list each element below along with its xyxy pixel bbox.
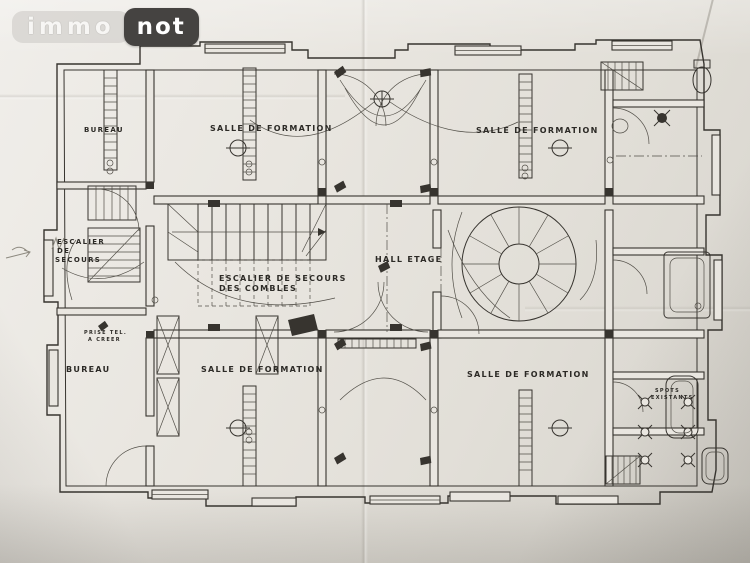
doors	[97, 74, 649, 486]
label-escalier-combles-1: ESCALIER DE SECOURS	[219, 274, 347, 283]
label-spots-2: EXISTANTS	[651, 395, 694, 401]
label-salle-bottom-right: SALLE DE FORMATION	[467, 370, 590, 379]
interior-walls	[57, 70, 704, 486]
immonot-logo-immo: immo	[12, 11, 130, 43]
label-hall-etage: HALL ETAGE	[375, 255, 442, 264]
stair-combles	[168, 200, 402, 336]
label-escalier-secours-3: SECOURS	[55, 256, 101, 264]
label-escalier-secours-2: DE	[57, 247, 70, 255]
pencil-annotation	[6, 238, 64, 258]
immonot-logo: immo not	[12, 8, 199, 46]
label-spots-1: SPOTS	[655, 388, 680, 394]
label-salle-top-right: SALLE DE FORMATION	[476, 126, 599, 135]
label-prise-tel-1: PRISE TEL.	[84, 330, 127, 336]
label-bureau-bottom: BUREAU	[66, 365, 110, 374]
label-prise-tel-2: A CREER	[88, 337, 121, 343]
label-salle-bottom-center: SALLE DE FORMATION	[201, 365, 324, 374]
label-salle-top-center: SALLE DE FORMATION	[210, 124, 333, 133]
label-escalier-combles-2: DES COMBLES	[219, 284, 297, 293]
label-escalier-secours-1: ESCALIER	[57, 238, 105, 246]
floor-plan: BUREAU SALLE DE FORMATION SALLE DE FORMA…	[0, 0, 750, 563]
immonot-logo-not: not	[124, 8, 199, 46]
stair-spiral	[452, 207, 597, 321]
label-bureau-top: BUREAU	[84, 126, 124, 134]
